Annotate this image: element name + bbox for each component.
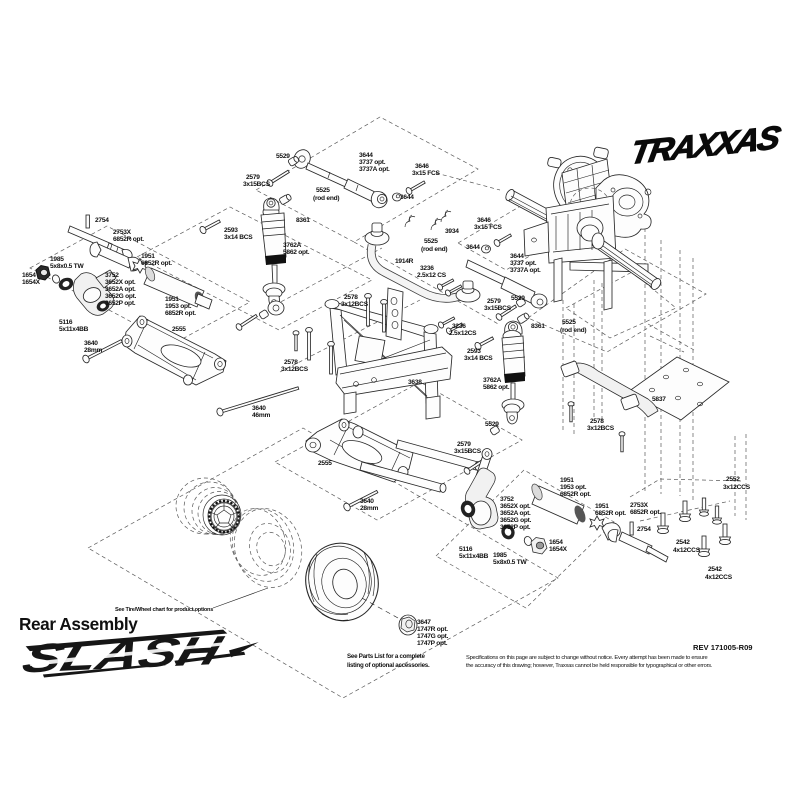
svg-text:See Tire/Wheel chart for produ: See Tire/Wheel chart for product options [115,607,213,613]
svg-text:1654: 1654 [549,539,563,546]
svg-text:5x8x0.5 TW: 5x8x0.5 TW [493,559,527,566]
svg-text:3x12CCS: 3x12CCS [723,484,751,491]
svg-text:3652G opt.: 3652G opt. [500,517,532,524]
svg-text:3x15 FCS: 3x15 FCS [412,170,441,177]
svg-text:5529: 5529 [511,295,525,302]
svg-text:3652X opt.: 3652X opt. [500,503,531,510]
svg-text:2578: 2578 [344,294,358,301]
svg-text:2753X: 2753X [113,229,132,236]
svg-text:1747R opt.: 1747R opt. [417,626,448,633]
svg-text:2552: 2552 [726,476,740,483]
svg-text:3644: 3644 [359,152,373,159]
svg-text:6852R opt.: 6852R opt. [113,236,144,243]
svg-text:1985: 1985 [493,552,507,559]
svg-text:5529: 5529 [276,153,290,160]
svg-text:3752: 3752 [105,272,119,279]
svg-text:2753X: 2753X [630,502,649,509]
svg-text:4x12CCS: 4x12CCS [705,574,733,581]
svg-text:1654: 1654 [22,272,36,279]
svg-text:REV 171005-R09: REV 171005-R09 [693,643,753,652]
svg-text:3x15BCS: 3x15BCS [243,181,271,188]
svg-text:2542: 2542 [676,539,690,546]
svg-text:2578: 2578 [590,418,604,425]
svg-text:2579: 2579 [487,298,501,305]
svg-text:28mm: 28mm [360,505,378,512]
svg-text:1654X: 1654X [22,279,41,286]
svg-text:5x11x4BB: 5x11x4BB [59,326,89,333]
svg-text:3752: 3752 [500,496,514,503]
svg-text:1747P opt.: 1747P opt. [417,640,448,647]
svg-text:listing of optional accessorie: listing of optional accessories. [347,662,430,669]
svg-text:1654X: 1654X [549,546,568,553]
svg-text:2542: 2542 [708,566,722,573]
svg-text:3x14 BCS: 3x14 BCS [464,355,493,362]
svg-text:3638: 3638 [408,379,422,386]
svg-text:3640: 3640 [360,498,374,505]
svg-text:3762A: 3762A [483,377,502,384]
svg-text:the accuracy of this drawing;: the accuracy of this drawing; however, T… [466,663,713,669]
svg-text:3x12BCS: 3x12BCS [281,366,309,373]
svg-text:1914R: 1914R [395,258,414,265]
svg-text:1953 opt.: 1953 opt. [165,303,192,310]
svg-text:See Parts List for a complete: See Parts List for a complete [347,653,425,660]
svg-text:2579: 2579 [457,441,471,448]
svg-text:5525: 5525 [316,187,330,194]
svg-text:3652G opt.: 3652G opt. [105,293,137,300]
svg-text:2555: 2555 [172,326,186,333]
svg-text:3737 opt.: 3737 opt. [359,159,386,166]
svg-text:2578: 2578 [284,359,298,366]
svg-text:1951: 1951 [595,503,609,510]
svg-text:5x11x4BB: 5x11x4BB [459,553,489,560]
svg-text:3934: 3934 [445,228,459,235]
svg-text:3236: 3236 [420,265,434,272]
svg-text:8361: 8361 [531,323,545,330]
svg-text:3762A: 3762A [283,242,302,249]
svg-text:5525: 5525 [562,319,576,326]
svg-text:3644: 3644 [466,244,480,251]
svg-text:6852R opt.: 6852R opt. [595,510,626,517]
svg-text:3652A opt.: 3652A opt. [105,286,136,293]
svg-text:5862 opt.: 5862 opt. [283,249,310,256]
svg-text:3x12BCS: 3x12BCS [341,301,369,308]
svg-text:5525: 5525 [424,238,438,245]
svg-text:5x8x0.5 TW: 5x8x0.5 TW [50,263,84,270]
svg-text:2555: 2555 [318,460,332,467]
svg-text:3737A opt.: 3737A opt. [359,166,390,173]
svg-text:2593: 2593 [224,227,238,234]
svg-text:3x15BCS: 3x15BCS [484,305,512,312]
svg-text:1951: 1951 [560,477,574,484]
svg-text:3x14 BCS: 3x14 BCS [224,234,253,241]
svg-text:1951: 1951 [165,296,179,303]
svg-text:1953 opt.: 1953 opt. [560,484,587,491]
svg-text:3737A opt.: 3737A opt. [510,267,541,274]
svg-text:3647: 3647 [417,619,431,626]
svg-text:(rod end): (rod end) [313,195,339,202]
svg-text:3652X opt.: 3652X opt. [105,279,136,286]
svg-text:4x12CCS: 4x12CCS [673,547,701,554]
svg-text:1951: 1951 [141,253,155,260]
svg-text:(rod end): (rod end) [560,327,586,334]
svg-text:3646: 3646 [415,163,429,170]
svg-text:2.5x12CS: 2.5x12CS [449,330,477,337]
svg-text:3652A opt.: 3652A opt. [500,510,531,517]
svg-text:46mm: 46mm [252,412,270,419]
svg-text:2754: 2754 [95,217,109,224]
svg-text:5116: 5116 [459,546,473,553]
svg-text:(rod end): (rod end) [421,246,447,253]
svg-text:1985: 1985 [50,256,64,263]
svg-text:6852R opt.: 6852R opt. [141,260,172,267]
svg-text:5116: 5116 [59,319,73,326]
svg-text:5529: 5529 [485,421,499,428]
svg-text:2.5x12 CS: 2.5x12 CS [417,272,447,279]
svg-text:3652P opt.: 3652P opt. [500,524,531,531]
svg-text:28mm: 28mm [84,347,102,354]
svg-text:2593: 2593 [467,348,481,355]
svg-text:3640: 3640 [84,340,98,347]
svg-text:3236: 3236 [452,323,466,330]
svg-text:Specifications on this page ar: Specifications on this page are subject … [466,655,708,661]
svg-text:3652P opt.: 3652P opt. [105,300,136,307]
svg-text:3644: 3644 [400,194,414,201]
svg-text:3644: 3644 [510,253,524,260]
svg-text:Rear Assembly: Rear Assembly [19,614,138,634]
svg-text:3737 opt.: 3737 opt. [510,260,537,267]
svg-text:5862 opt.: 5862 opt. [483,384,510,391]
svg-text:3x15 FCS: 3x15 FCS [474,224,503,231]
svg-text:3646: 3646 [477,217,491,224]
svg-text:8361: 8361 [296,217,310,224]
svg-text:3640: 3640 [252,405,266,412]
svg-text:6852R opt.: 6852R opt. [560,491,591,498]
svg-text:5837: 5837 [652,396,666,403]
svg-text:2579: 2579 [246,174,260,181]
svg-text:3x15BCS: 3x15BCS [454,448,482,455]
svg-text:6852R opt.: 6852R opt. [165,310,196,317]
svg-text:6852R opt.: 6852R opt. [630,509,661,516]
svg-text:1747G opt.: 1747G opt. [417,633,449,640]
svg-text:3x12BCS: 3x12BCS [587,425,615,432]
svg-text:2754: 2754 [637,526,651,533]
